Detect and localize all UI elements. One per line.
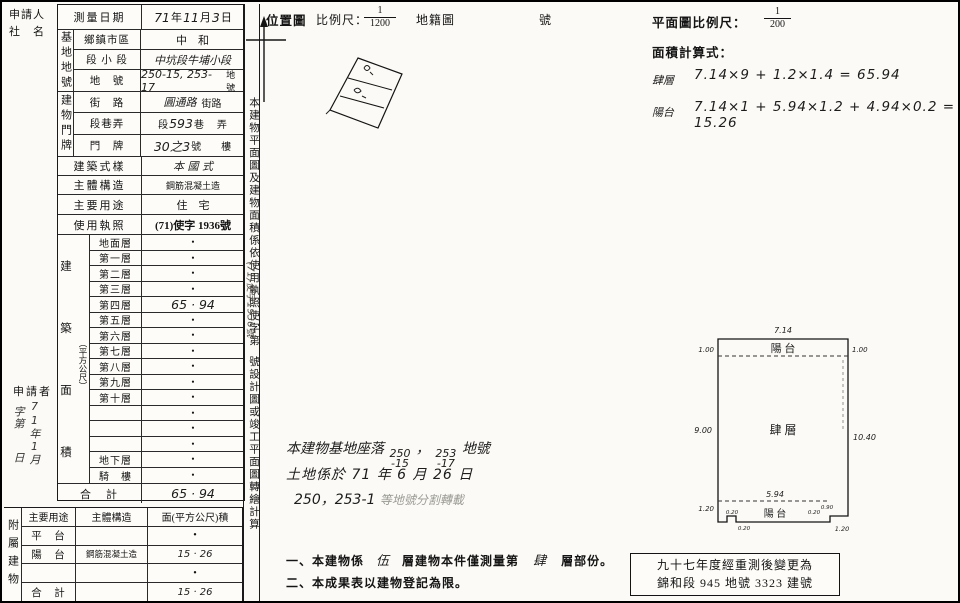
floor-row: 騎 樓• (90, 468, 244, 484)
floor-row: • (90, 406, 244, 422)
floor-value: • (142, 406, 244, 421)
main-form-table: 測量日期 71 年 11 月 3 日 基地地號 鄉鎮市區 中 和 段 小 段 中… (57, 4, 245, 501)
dim-top-left: 1.00 (698, 346, 714, 354)
area-char: 面 (60, 382, 72, 398)
total-row: 合 計 65 · 94 (58, 484, 244, 503)
floor-row: 第十層• (90, 390, 244, 406)
style-label: 建築式樣 (58, 157, 142, 175)
attached-use: 平 台 (22, 527, 76, 545)
map-number-suffix: 號 (539, 11, 552, 28)
floor-row: 第一層• (90, 251, 244, 267)
lane-label: 段巷弄 (74, 113, 141, 134)
lane-suffix: 弄 (217, 116, 227, 131)
street-value: 圓通路 (164, 94, 197, 110)
scale-denominator: 1200 (364, 17, 396, 30)
floor-row: 第二層• (90, 266, 244, 282)
door-group: 建物門牌 街 路 圓通路 街路 段巷弄 段 593 巷 弄 (58, 92, 244, 157)
floor-value: • (142, 328, 244, 343)
floor-row: 地面層• (90, 235, 244, 251)
floor-value: • (142, 251, 244, 266)
plan-scale-label: 平面圖比例尺： (652, 12, 747, 31)
site-group: 基地地號 鄉鎮市區 中 和 段 小 段 中坑段牛埔小段 地 號 250-15, … (58, 30, 244, 92)
floor-value: • (142, 282, 244, 297)
floor-row: 第七層• (90, 344, 244, 360)
area-char: 築 (60, 320, 72, 336)
applicant-label: 申請人 (9, 7, 55, 24)
floor-value: • (142, 313, 244, 328)
doorplate-label: 門 牌 (74, 135, 141, 156)
door-group-label: 建物門牌 (58, 94, 74, 154)
month-char: 月 (200, 9, 211, 25)
balcony-top-label: 陽 台 (771, 341, 796, 355)
floor-value: • (142, 235, 244, 250)
attached-row: 平 台 • (22, 527, 242, 546)
lane-value: 593 (169, 116, 193, 131)
floor-label: 地下層 (90, 452, 142, 467)
area-unit-label: （平方公尺） (77, 339, 89, 390)
lane-mid: 巷 (194, 116, 204, 131)
attached-area: • (148, 564, 242, 582)
street-label: 街 路 (74, 92, 141, 112)
doorplate-row: 門 牌 30之3 號 樓 (74, 135, 244, 156)
attached-use: 合 計 (22, 583, 76, 601)
scale-numerator: 1 (378, 5, 383, 17)
year-char: 年 (171, 9, 182, 25)
attached-header-use: 主要用途 (22, 508, 76, 526)
plan-scale-numerator: 1 (775, 6, 780, 18)
structure-value: 鋼筋混凝土造 (142, 176, 244, 194)
note-1-suffix: 層部份。 (561, 554, 613, 568)
attached-header-structure: 主體構造 (76, 508, 148, 526)
remeasure-stamp-box: 九十七年度經重測後變更為 錦和段 945 地號 3323 建號 (630, 553, 840, 596)
floor-row: 第六層• (90, 328, 244, 344)
district-label: 鄉鎮市區 (74, 30, 141, 49)
total-label: 合 計 (58, 484, 142, 503)
style-value: 本 國 式 (142, 157, 244, 175)
total-value: 65 · 94 (142, 484, 244, 503)
formula-2-expr: 7.14×1 + 5.94×1.2 + 4.94×0.2 = 15.26 (694, 99, 958, 131)
note-1-hand-measured: 肆 (533, 554, 547, 569)
section-label: 段 小 段 (74, 50, 141, 69)
floor-4-area: 65 · 94 (142, 297, 244, 312)
plan-scale-denominator: 200 (764, 18, 791, 31)
style-row: 建築式樣 本 國 式 (58, 157, 244, 176)
dim-bottom-left: 1.20 (698, 505, 714, 513)
doorplate-suffix: 號 樓 (191, 138, 231, 153)
doorplate-value: 30之3 (154, 136, 190, 155)
floor-value: • (142, 344, 244, 359)
plan-scale-fraction: 1 200 (764, 6, 791, 30)
dim-left: 9.00 (694, 426, 712, 435)
license-label: 使用執照 (58, 215, 142, 234)
dim-small-4: 0.90 (821, 505, 834, 511)
attached-structures-table: 附屬建物 主要用途 主體構造 面(平方公尺)積 平 台 • 陽 台 鋼筋混凝土造… (4, 507, 243, 601)
floor-row: • (90, 437, 244, 453)
applicant-label-block: 申請人 社 名 (9, 7, 55, 40)
dim-top: 7.14 (774, 326, 792, 335)
survey-form-document: 申請人 社 名 申請者 71年1月 字第 日 測量日期 71 年 11 月 3 … (0, 0, 960, 603)
dim-bottom-width: 5.94 (766, 490, 784, 499)
receipt-stamp: 71年1月 字第 日 (10, 400, 42, 492)
floor-label: 騎 樓 (90, 468, 142, 484)
floor-value: • (142, 359, 244, 374)
north-arrow-icon (246, 14, 290, 106)
structure-label: 主體構造 (58, 176, 142, 194)
attached-area: 15 · 26 (148, 583, 242, 601)
floor-row: 第三層• (90, 282, 244, 298)
lot-suffix: 地號 (226, 68, 244, 94)
applicant2-label: 申請者 (13, 383, 52, 399)
attached-row: 陽 台 鋼筋混凝土造 15 · 26 (22, 546, 242, 565)
floor-value: • (142, 390, 244, 405)
floor-row: 地下層• (90, 452, 244, 468)
day-char: 日 (221, 9, 232, 25)
floor-row: 第九層• (90, 375, 244, 391)
usage-label: 主要用途 (58, 195, 142, 214)
stamp-day: 日 (12, 452, 25, 464)
attached-structure (76, 583, 148, 601)
floor-value: • (142, 266, 244, 281)
site-group-label: 基地地號 (58, 31, 74, 91)
license-value: (71)使字 1936號 (142, 215, 244, 234)
lot-label: 地 號 (74, 70, 141, 91)
remeasure-line2: 錦和段 945 地號 3323 建號 (657, 575, 813, 592)
note-2: 二、本成果表以建物登記為限。 (286, 574, 468, 591)
section-value: 中坑段牛埔小段 (154, 52, 231, 68)
formula-1-expr: 7.14×9 + 1.2×1.4 = 65.94 (694, 67, 901, 83)
area-char: 建 (60, 258, 72, 274)
district-value: 中 和 (141, 30, 244, 49)
survey-month: 11 (183, 10, 199, 25)
dim-small-1: 0.20 (726, 510, 739, 516)
note-1-hand-floors: 伍 (376, 554, 390, 569)
balcony-bottom-label: 陽 台 (764, 507, 787, 520)
remeasure-line1: 九十七年度經重測後變更為 (657, 557, 813, 574)
lot-row: 地 號 250-15, 253-17 地號 (74, 70, 244, 91)
street-suffix: 街路 (202, 95, 222, 110)
floor-label: 第六層 (90, 328, 142, 343)
note-1-pre: 一、本建物係 (286, 554, 364, 568)
floor-row: 第四層65 · 94 (90, 297, 244, 313)
location-scale-label: 比例尺： (316, 11, 368, 28)
floor-label: 地面層 (90, 235, 142, 250)
floor-value: • (142, 421, 244, 436)
parcel-sketch (324, 50, 416, 136)
attached-side-label: 附屬建物 (5, 519, 21, 591)
floor-area-label: 肆 層 (769, 423, 796, 437)
land-note-line3: 250，253-1 等地號分割轉載 (294, 489, 464, 509)
dim-small-3: 0.20 (808, 510, 821, 516)
attached-area: 15 · 26 (148, 546, 242, 564)
floor-label: 第四層 (90, 297, 142, 312)
usage-row: 主要用途 住 宅 (58, 195, 244, 215)
survey-day: 3 (212, 10, 220, 25)
survey-year: 71 (154, 10, 170, 25)
floor-value: • (142, 452, 244, 467)
attached-use (22, 564, 76, 582)
attached-row: 合 計 15 · 26 (22, 583, 242, 601)
area-char: 積 (60, 444, 72, 460)
district-row: 鄉鎮市區 中 和 (74, 30, 244, 50)
floor-label: 第二層 (90, 266, 142, 281)
license-stamp-rotated: (71)使字1936號 (245, 254, 260, 346)
floor-label: 第九層 (90, 375, 142, 390)
street-row: 街 路 圓通路 街路 (74, 92, 244, 113)
land-note-line3-faint: 等地號分割轉載 (380, 493, 464, 507)
land-note-line3-numbers: 250，253-1 (294, 492, 375, 508)
floor-row: 第八層• (90, 359, 244, 375)
floor-label: 第八層 (90, 359, 142, 374)
area-group-label-col: 建 築 面 積 （平方公尺） (58, 235, 90, 483)
floor-value: • (142, 437, 244, 452)
note-1-mid: 層建物本件僅測量第 (402, 554, 519, 568)
license-row: 使用執照 (71)使字 1936號 (58, 215, 244, 235)
floor-value: • (142, 375, 244, 390)
attached-structure (76, 564, 148, 582)
note-1: 一、本建物係 伍 層建物本件僅測量第 肆 層部份。 (286, 550, 613, 569)
land-note-suffix: 地號 (462, 441, 490, 457)
dim-right: 10.40 (853, 433, 876, 442)
location-scale-fraction: 1 1200 (364, 5, 396, 29)
area-calc-title: 面積計算式： (652, 42, 733, 61)
floor-plan-drawing: 7.14 1.00 1.00 陽 台 9.00 10.40 肆 層 5.94 1… (690, 320, 925, 545)
floor-label: 第十層 (90, 390, 142, 405)
structure-row: 主體構造 鋼筋混凝土造 (58, 176, 244, 195)
stamp-no: 字第 (12, 406, 25, 430)
land-note-pre: 本建物基地座落 (286, 441, 384, 457)
floor-label (90, 421, 142, 436)
lane-pre: 段 (158, 116, 168, 131)
floor-row: • (90, 421, 244, 437)
formula-2-name: 陽台 (652, 104, 674, 120)
lane-row: 段巷弄 段 593 巷 弄 (74, 113, 244, 135)
area-group: 建 築 面 積 （平方公尺） 地面層• 第一層• 第二層• 第三層• 第四層65… (58, 235, 244, 484)
survey-date-row: 測量日期 71 年 11 月 3 日 (58, 5, 244, 30)
usage-value: 住 宅 (142, 195, 244, 214)
floor-label: 第七層 (90, 344, 142, 359)
floor-label (90, 406, 142, 421)
attached-use: 陽 台 (22, 546, 76, 564)
land-note-line2: 土地係於 71 年 6 月 26 日 (286, 464, 473, 484)
stamp-date: 71年1月 (28, 400, 41, 466)
formula-1-name: 肆層 (652, 72, 674, 88)
cadastral-map-label: 地籍圖 (416, 11, 455, 28)
floor-label: 第一層 (90, 251, 142, 266)
floor-value: • (142, 468, 244, 484)
applicant-name-label: 社 名 (9, 24, 55, 41)
floor-row: 第五層• (90, 313, 244, 329)
lot-value: 250-15, 253-17 (141, 68, 225, 94)
survey-date-label: 測量日期 (58, 5, 142, 29)
attached-row: • (22, 564, 242, 583)
attached-area: • (148, 527, 242, 545)
dim-small-2: 0.20 (738, 526, 751, 532)
land-note-comma: ， (416, 441, 430, 457)
attached-structure: 鋼筋混凝土造 (76, 546, 148, 564)
attached-structure (76, 527, 148, 545)
attached-header-row: 主要用途 主體構造 面(平方公尺)積 (22, 508, 242, 527)
strip-text-2: 號設計圖或竣工平面圖轉繪計算 (246, 356, 261, 531)
attached-header-area: 面(平方公尺)積 (148, 508, 242, 526)
floor-label (90, 437, 142, 452)
dim-step: 1.20 (835, 525, 849, 533)
dim-top-right: 1.00 (852, 346, 868, 354)
floor-label: 第三層 (90, 282, 142, 297)
floor-label: 第五層 (90, 313, 142, 328)
